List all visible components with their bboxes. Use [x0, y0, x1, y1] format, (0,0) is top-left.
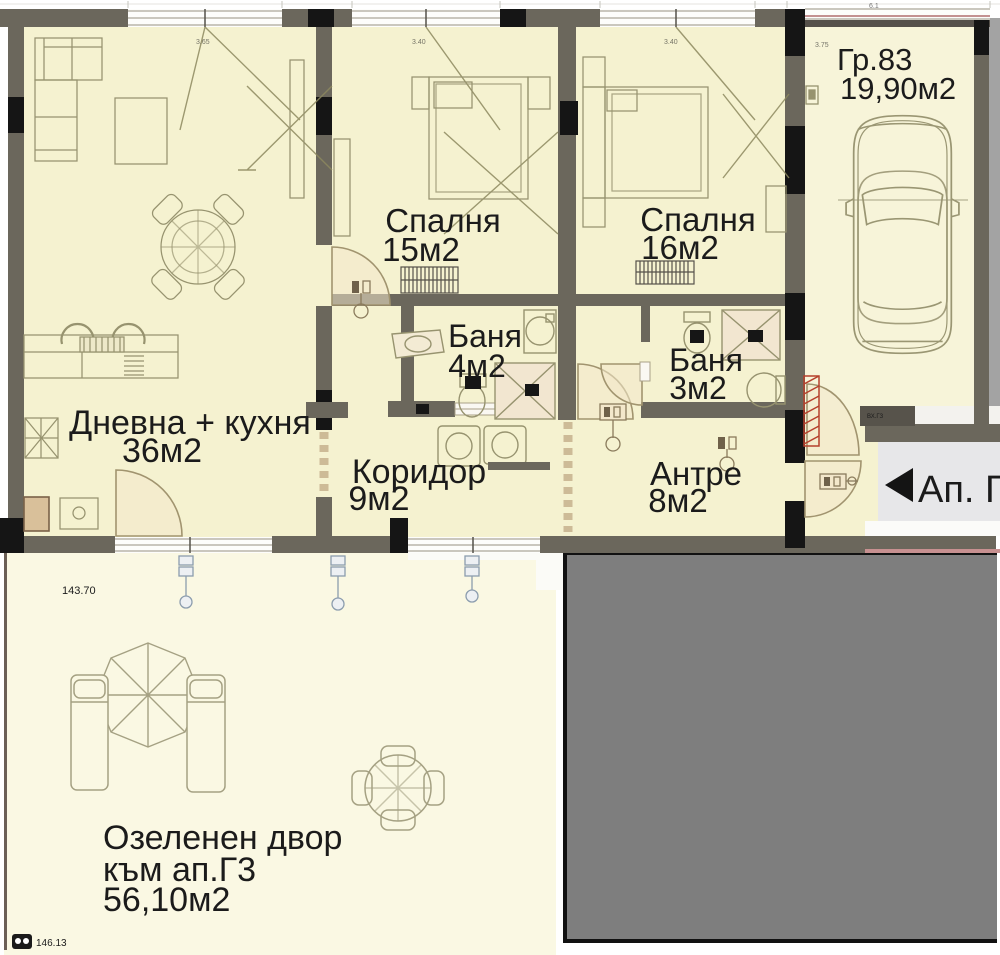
svg-text:3м2: 3м2 — [669, 370, 727, 406]
svg-text:6.1: 6.1 — [869, 3, 879, 10]
svg-text:15м2: 15м2 — [382, 231, 460, 268]
svg-text:3.40: 3.40 — [412, 39, 426, 46]
svg-text:16м2: 16м2 — [641, 229, 719, 266]
svg-text:19,90м2: 19,90м2 — [840, 71, 956, 106]
svg-text:3.65: 3.65 — [196, 39, 210, 46]
svg-text:9м2: 9м2 — [348, 480, 409, 518]
svg-text:Ап. Г3: Ап. Г3 — [918, 469, 1000, 511]
svg-text:8м2: 8м2 — [648, 482, 707, 519]
svg-text:3.40: 3.40 — [664, 39, 678, 46]
svg-text:146.13: 146.13 — [36, 938, 67, 949]
svg-text:36м2: 36м2 — [122, 432, 202, 470]
svg-text:3.75: 3.75 — [815, 42, 829, 49]
svg-text:143.70: 143.70 — [62, 585, 96, 597]
svg-text:4м2: 4м2 — [448, 348, 506, 384]
svg-text:56,10м2: 56,10м2 — [103, 881, 230, 919]
svg-text:ВХ.ГЗ: ВХ.ГЗ — [867, 414, 884, 420]
